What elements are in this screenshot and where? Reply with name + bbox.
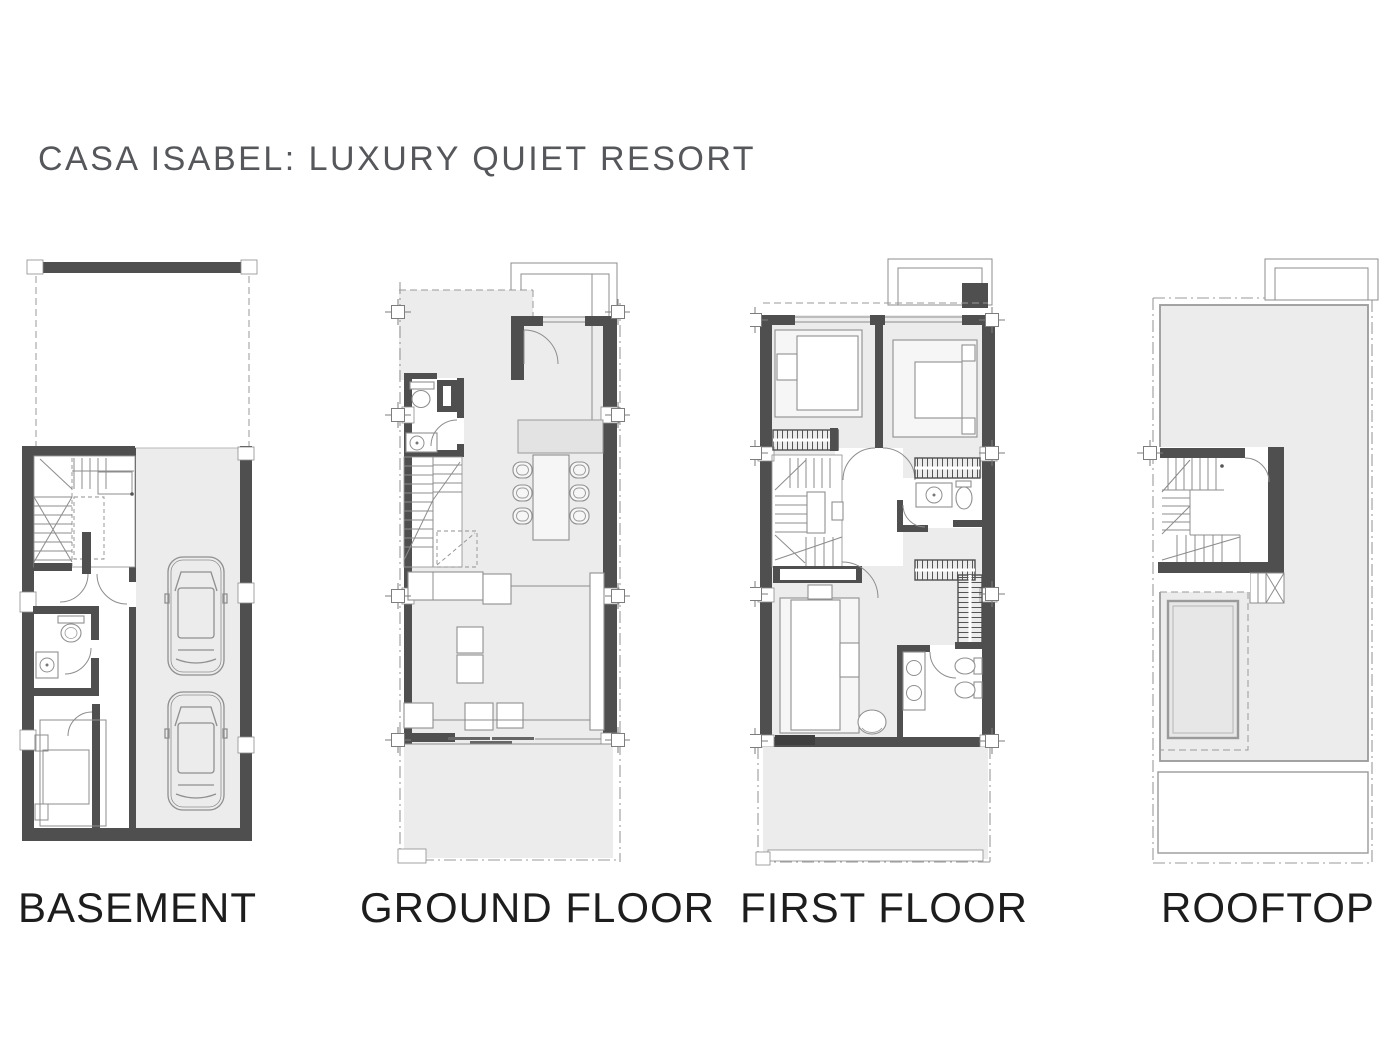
- sideboard: [590, 573, 604, 730]
- rooftop-label: ROOFTOP: [1140, 884, 1396, 932]
- rooftop-plan: [1135, 252, 1385, 870]
- ground-floorplan-drawing: [380, 252, 630, 870]
- console-shelf: [773, 566, 862, 583]
- page-title: CASA ISABEL: LUXURY QUIET RESORT: [38, 140, 756, 179]
- terrace: [398, 744, 620, 863]
- first-floor-plan: [750, 252, 1005, 870]
- skylight-icon: [1250, 573, 1284, 603]
- driveway-outline: [27, 260, 257, 446]
- terrace: [756, 735, 990, 865]
- pool-deck-strip: [1158, 573, 1250, 592]
- bathroom: [33, 606, 99, 696]
- sink-icon: [916, 483, 952, 507]
- bed-icon: [893, 340, 977, 437]
- chimney-block: [962, 283, 988, 308]
- coffee-table: [457, 627, 483, 683]
- toilet-icon: [955, 658, 982, 674]
- equipment-room: [35, 704, 106, 828]
- basement-label: BASEMENT: [15, 884, 260, 932]
- chair-icon: [858, 710, 886, 734]
- toilet-icon: [58, 616, 84, 642]
- sink-icon: [406, 433, 437, 452]
- toilet-icon: [956, 481, 972, 509]
- sink-icon: [903, 652, 925, 710]
- ground-floor-plan: [380, 252, 630, 870]
- bed-icon: [775, 330, 862, 417]
- bidet-icon: [955, 682, 982, 698]
- first-floorplan-drawing: [750, 252, 1005, 870]
- rooftop-floorplan-drawing: [1135, 252, 1385, 870]
- basement-plan: [15, 252, 260, 870]
- sink-icon: [36, 652, 58, 678]
- ground-floor-label: GROUND FLOOR: [360, 884, 660, 932]
- first-floor-label: FIRST FLOOR: [740, 884, 1020, 932]
- porch-outline: [1265, 259, 1378, 300]
- planter: [1158, 772, 1368, 853]
- floor-plan-sheet: CASA ISABEL: LUXURY QUIET RESORT: [0, 0, 1400, 1050]
- pool: [1160, 592, 1248, 750]
- basement-floorplan-drawing: [15, 252, 260, 870]
